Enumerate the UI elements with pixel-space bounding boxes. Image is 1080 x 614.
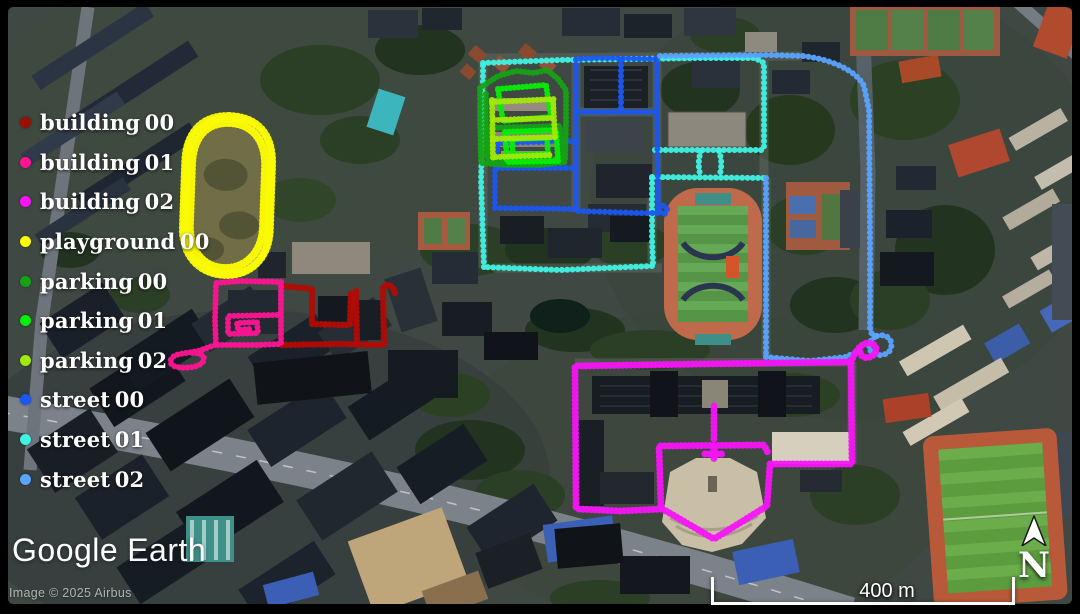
compass-north-label: N xyxy=(1012,549,1056,582)
legend-label-building-00: building 00 xyxy=(40,110,174,135)
north-arrow-icon xyxy=(1012,512,1056,546)
legend-item-parking-02: parking 02 xyxy=(20,341,210,381)
legend-item-playground-00: playground 00 xyxy=(20,222,210,262)
legend: building 00building 01building 02playgro… xyxy=(20,103,210,499)
legend-item-building-01: building 01 xyxy=(20,143,210,183)
compass[interactable]: N xyxy=(1012,512,1056,582)
legend-dot-street-01 xyxy=(20,434,31,445)
legend-dot-playground-00 xyxy=(20,236,31,247)
legend-label-parking-02: parking 02 xyxy=(40,348,167,373)
legend-dot-building-00 xyxy=(20,117,31,128)
legend-item-parking-01: parking 01 xyxy=(20,301,210,341)
legend-label-street-02: street 02 xyxy=(40,467,144,492)
legend-label-building-01: building 01 xyxy=(40,150,174,175)
logo-google-text: Google xyxy=(12,532,118,568)
logo-earth-text: Earth xyxy=(127,532,206,568)
legend-label-playground-00: playground 00 xyxy=(40,229,210,254)
legend-item-building-00: building 00 xyxy=(20,103,210,143)
legend-dot-building-01 xyxy=(20,157,31,168)
legend-label-parking-01: parking 01 xyxy=(40,308,167,333)
legend-dot-parking-02 xyxy=(20,355,31,366)
legend-item-street-00: street 00 xyxy=(20,380,210,420)
legend-dot-building-02 xyxy=(20,196,31,207)
legend-label-street-01: street 01 xyxy=(40,427,144,452)
stadium xyxy=(664,188,762,345)
google-earth-screenshot: building 00building 01building 02playgro… xyxy=(0,0,1080,614)
imagery-attribution: Image © 2025 Airbus xyxy=(9,586,132,600)
legend-dot-street-00 xyxy=(20,394,31,405)
scale-bar-label: 400 m xyxy=(859,581,915,602)
legend-dot-parking-00 xyxy=(20,276,31,287)
legend-item-street-01: street 01 xyxy=(20,420,210,460)
legend-item-street-02: street 02 xyxy=(20,459,210,499)
monument xyxy=(708,476,717,492)
legend-label-street-00: street 00 xyxy=(40,387,144,412)
legend-label-building-02: building 02 xyxy=(40,189,174,214)
legend-label-parking-00: parking 00 xyxy=(40,269,167,294)
legend-item-building-02: building 02 xyxy=(20,182,210,222)
google-earth-logo: GoogleEarth xyxy=(12,532,206,569)
legend-item-parking-00: parking 00 xyxy=(20,261,210,301)
scale-bar: 400 m xyxy=(711,577,1015,605)
legend-dot-street-02 xyxy=(20,474,31,485)
legend-dot-parking-01 xyxy=(20,315,31,326)
